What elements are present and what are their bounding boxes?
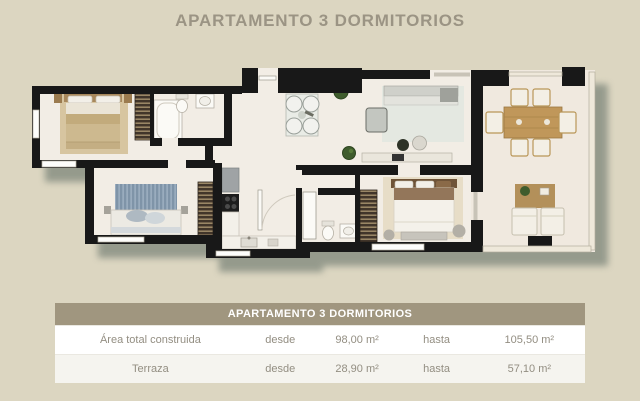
row-label: Área total construida: [55, 334, 246, 346]
nightstand-icon: [104, 206, 111, 214]
outdoor-chair-icon: [486, 112, 503, 133]
nightstand-icon: [54, 93, 62, 103]
outdoor-chair-icon: [511, 139, 528, 156]
window-icon: [42, 161, 76, 167]
sun-lounger-icon: [512, 208, 537, 235]
sun-lounger-icon: [541, 208, 564, 235]
tv-icon: [392, 154, 404, 161]
sliding-door-icon: [434, 73, 470, 77]
outdoor-chair-icon: [533, 139, 550, 156]
kitchen-counter: [222, 212, 239, 236]
fridge-icon: [222, 168, 239, 192]
window-icon: [98, 237, 144, 242]
dining-chair-icon: [286, 96, 302, 112]
pillow-icon: [395, 181, 413, 188]
outdoor-chair-icon: [559, 112, 576, 133]
bench-icon: [401, 232, 447, 240]
window-icon: [33, 110, 39, 138]
outdoor-chair-icon: [533, 89, 550, 106]
railing-top: [509, 72, 562, 76]
from-value: 98,00 m²: [315, 334, 400, 346]
railing-right: [589, 72, 595, 250]
pillow-icon: [145, 212, 165, 224]
door-leaf-icon: [303, 192, 316, 239]
pillow-icon: [96, 96, 120, 103]
plant-icon: [343, 147, 356, 160]
to-value: 105,50 m²: [474, 334, 585, 346]
kitchen-counter: [222, 236, 296, 249]
plant-pot-icon: [397, 139, 409, 151]
page: APARTAMENTO 3 DORMITORIOS: [0, 0, 640, 401]
window-icon: [216, 251, 250, 256]
sofa-corner: [440, 88, 458, 102]
table-row: Terraza desde 28,90 m² hasta 57,10 m²: [55, 354, 585, 383]
railing-bottom: [483, 246, 591, 252]
plant-icon: [520, 186, 530, 196]
spec-table-header: APARTAMENTO 3 DORMITORIOS: [55, 303, 585, 325]
dining-area: [286, 94, 319, 136]
toilet-icon: [323, 226, 334, 240]
pouf-icon: [453, 225, 466, 238]
pouf-icon: [384, 230, 395, 241]
dining-chair-icon: [303, 118, 319, 134]
wardrobe-icon: [360, 190, 377, 242]
coffee-table-icon: [413, 136, 427, 150]
table-row: Área total construida desde 98,00 m² has…: [55, 325, 585, 354]
outdoor-table-icon: [504, 107, 562, 138]
dining-chair-icon: [303, 96, 319, 112]
from-value: 28,90 m²: [315, 363, 400, 375]
pillow-icon: [126, 210, 148, 222]
row-label: Terraza: [55, 363, 246, 375]
door-leaf-icon: [258, 190, 262, 230]
to-label: hasta: [399, 363, 473, 375]
dining-chair-icon: [286, 118, 302, 134]
spec-table: APARTAMENTO 3 DORMITORIOS Área total con…: [55, 303, 585, 383]
to-value: 57,10 m²: [474, 363, 585, 375]
from-label: desde: [246, 363, 315, 375]
pillow-icon: [68, 96, 92, 103]
to-label: hasta: [399, 334, 473, 346]
wardrobe-icon: [198, 182, 213, 238]
armchair-icon: [366, 108, 387, 132]
from-label: desde: [246, 334, 315, 346]
pillow-icon: [436, 181, 451, 188]
cooktop-icon: [222, 194, 239, 212]
wardrobe-icon: [135, 93, 151, 140]
nightstand-icon: [124, 93, 132, 103]
pillow-icon: [416, 181, 434, 188]
toilet-icon: [177, 100, 188, 113]
nightstand-icon: [181, 206, 188, 214]
sideboard-icon: [362, 153, 452, 162]
window-icon: [372, 244, 424, 250]
sliding-door-icon: [474, 192, 478, 220]
outdoor-rug: [515, 184, 555, 208]
outdoor-chair-icon: [511, 89, 528, 106]
door-leaf-icon: [259, 76, 276, 80]
